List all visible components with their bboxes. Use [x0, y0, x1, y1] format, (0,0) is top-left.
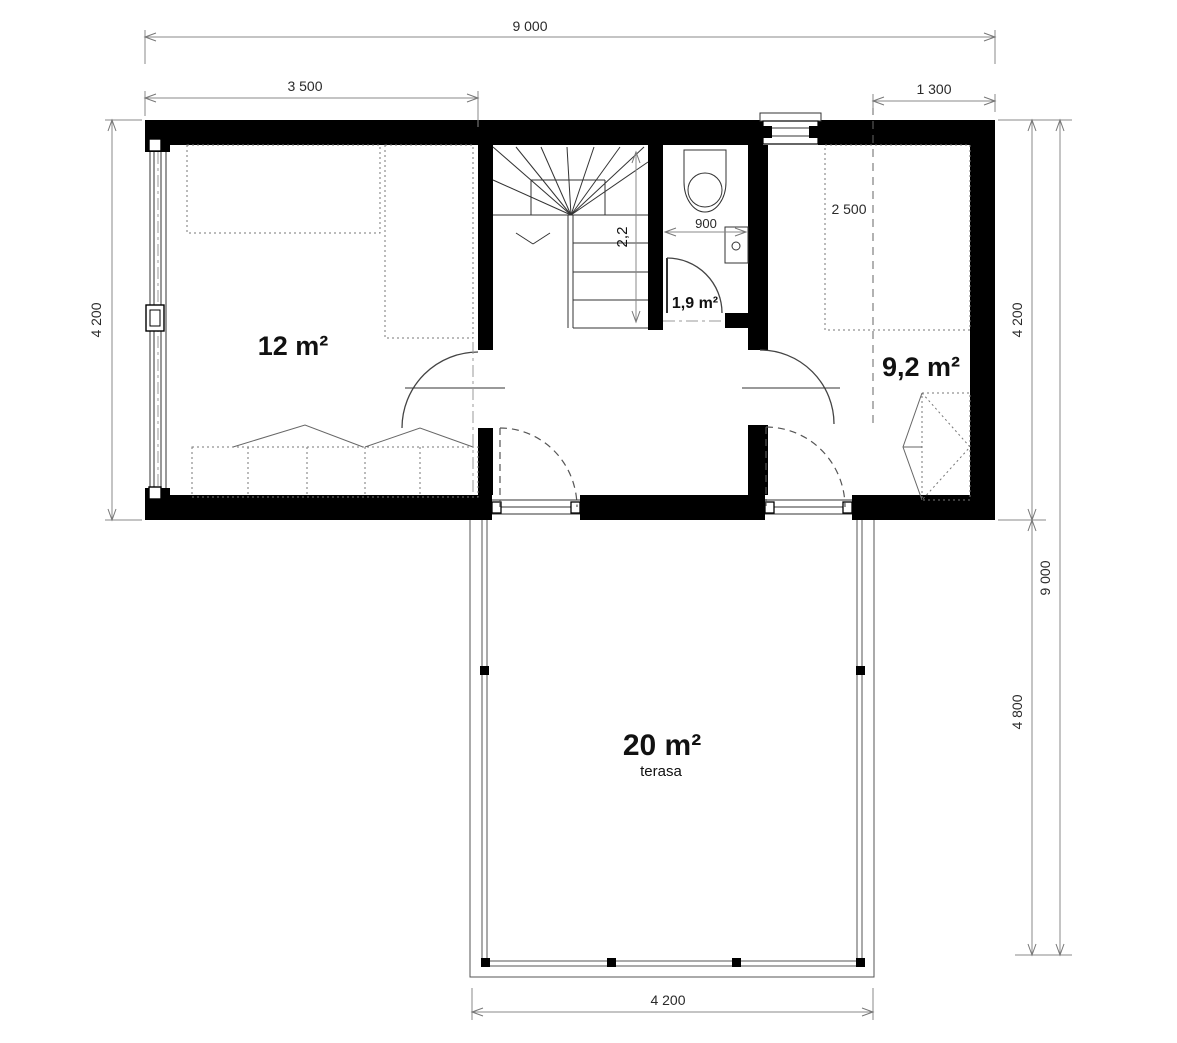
dim-terrace-width-label: 4 200 [650, 992, 685, 1008]
dim-terrace-width: 4 200 [472, 988, 873, 1020]
sliding-glass-door [146, 139, 170, 499]
stairs: 2,2 [493, 147, 648, 328]
window-icon [760, 113, 821, 144]
dim-right-upper-height-label: 4 200 [1009, 302, 1025, 337]
door-handle-icon [146, 305, 164, 331]
door-bedroom-right [742, 350, 840, 424]
dim-right-upper-height: 4 200 [998, 120, 1072, 520]
furniture-bedroom-left [187, 145, 478, 497]
furniture-bedroom-right: 2 500 [825, 107, 970, 500]
terrace-door-frame-left [492, 495, 580, 520]
dim-overall-width-label: 9 000 [512, 18, 547, 34]
door-bedroom-left [402, 352, 505, 428]
room-label-bedroom-left: 12 m² [258, 331, 329, 361]
terrace-door-frame-right [765, 495, 852, 520]
floor-plan-canvas: 2,2 900 [0, 0, 1177, 1043]
toilet-icon [684, 150, 726, 212]
dim-wc-width-label: 900 [695, 216, 717, 231]
dim-bedroom-left-width: 3 500 [145, 78, 478, 127]
dim-stair-length: 2,2 [614, 152, 640, 322]
dim-stair-length-label: 2,2 [614, 227, 631, 248]
room-sublabel-terrace: terasa [640, 763, 682, 780]
stair-direction-arrow-icon [516, 233, 550, 244]
dim-window-offset-label: 1 300 [916, 81, 951, 97]
dim-overall-height-label: 9 000 [1037, 560, 1053, 595]
floor-plan-drawing: 2,2 900 [0, 0, 1177, 1043]
room-labels: 12 m² 1,9 m² 9,2 m² 20 m² terasa [258, 295, 960, 780]
wardrobe-left [192, 425, 478, 497]
room-label-wc: 1,9 m² [672, 295, 718, 312]
room-label-bedroom-right: 9,2 m² [882, 352, 960, 382]
dim-bed-length-label: 2 500 [831, 201, 866, 217]
dim-left-height: 4 200 [88, 120, 142, 520]
wardrobe-right [903, 393, 970, 500]
dim-overall-width: 9 000 [145, 18, 995, 64]
terrace-posts [480, 666, 865, 967]
dim-bedroom-left-width-label: 3 500 [287, 78, 322, 94]
dim-overall-height: 9 000 [1037, 120, 1072, 955]
dim-terrace-height-label: 4 800 [1009, 694, 1025, 729]
dim-window-offset: 1 300 [873, 81, 995, 112]
room-label-terrace: 20 m² [623, 729, 701, 762]
dim-left-height-label: 4 200 [88, 302, 104, 337]
